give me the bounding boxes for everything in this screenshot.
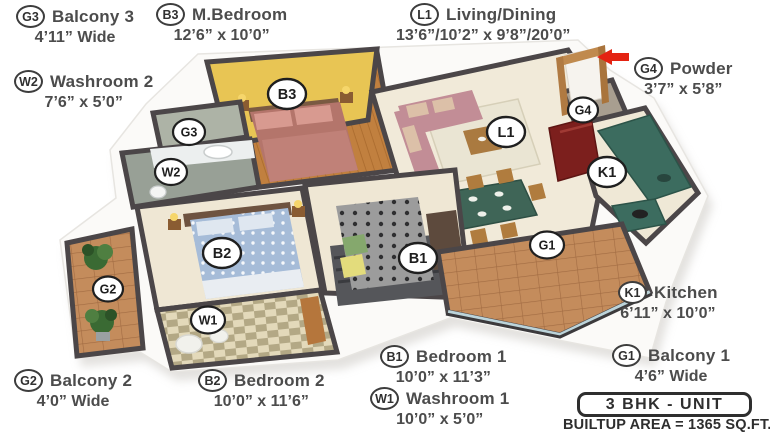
builtup-area-label: BUILTUP AREA = 1365 SQ.FT. [563, 417, 770, 433]
marker-b3: B3 [268, 79, 306, 109]
marker-b1: B1 [399, 243, 437, 273]
marker-w1: W1 [191, 307, 225, 334]
room-dims: 13’6”/10’2” x 9’8”/20’0” [396, 27, 570, 45]
svg-text:B2: B2 [213, 246, 232, 262]
lamp [170, 213, 178, 221]
unit-type-label: 3 BHK - UNIT [606, 396, 724, 414]
room-name: Kitchen [654, 283, 718, 303]
svg-text:G3: G3 [181, 126, 198, 140]
marker-k1: K1 [588, 157, 626, 187]
cooktop [632, 210, 648, 219]
room-code-badge: B1 [380, 345, 409, 368]
svg-text:B3: B3 [278, 87, 297, 103]
room-dims: 10’0” x 11’3” [380, 369, 507, 387]
room-code-badge: G3 [16, 5, 45, 28]
room-code-badge: G1 [612, 344, 641, 367]
room-code-badge: G4 [634, 57, 663, 80]
legend-washroom-1: W1 Washroom 1 10’0” x 5’0” [370, 387, 509, 429]
svg-text:G4: G4 [575, 104, 592, 118]
room-name: Washroom 1 [406, 389, 509, 409]
room-dims: 7’6” x 5’0” [14, 94, 153, 112]
lamp [342, 86, 350, 94]
svg-text:L1: L1 [498, 125, 515, 141]
marker-g2: G2 [93, 277, 123, 302]
room-name: Balcony 3 [52, 7, 134, 27]
room-dims: 6’11” x 10’0” [618, 305, 718, 323]
legend-bedroom-2: B2 Bedroom 2 10’0” x 11’6” [198, 369, 325, 411]
room-code-badge: W2 [14, 70, 43, 93]
legend-powder: G4 Powder 3’7” x 5’8” [634, 57, 733, 99]
marker-w2: W2 [155, 159, 187, 185]
svg-text:K1: K1 [598, 165, 617, 181]
svg-text:G1: G1 [539, 239, 556, 253]
marker-g4: G4 [568, 98, 598, 123]
room-name: Living/Dining [446, 5, 556, 25]
floorplan-page: B3 G3 W2 B2 G2 W1 [0, 0, 770, 434]
room-code-badge: B2 [198, 369, 227, 392]
legend-balcony-3: G3 Balcony 3 4’11” Wide [16, 5, 134, 47]
room-name: Washroom 2 [50, 72, 153, 92]
room-name: Balcony 2 [50, 371, 132, 391]
legend-washroom-2: W2 Washroom 2 7’6” x 5’0” [14, 70, 153, 112]
room-dims: 4’11” Wide [16, 29, 134, 47]
room-dims: 3’7” x 5’8” [634, 81, 733, 99]
room-name: Bedroom 1 [416, 347, 507, 367]
legend-master-bedroom: B3 M.Bedroom 12’6” x 10’0” [156, 3, 287, 45]
svg-text:G2: G2 [100, 283, 117, 297]
room-name: Bedroom 2 [234, 371, 325, 391]
dining-chair [500, 222, 518, 239]
room-code-badge: K1 [618, 281, 647, 304]
marker-b2: B2 [203, 238, 241, 268]
bathtub [204, 146, 232, 159]
room-dims: 4’6” Wide [612, 368, 730, 386]
toilet [150, 186, 166, 198]
room-code-badge: W1 [370, 387, 399, 410]
legend-balcony-2: G2 Balcony 2 4’0” Wide [14, 369, 132, 411]
svg-text:B1: B1 [409, 251, 428, 267]
room-name: Powder [670, 59, 733, 79]
marker-g3: G3 [173, 119, 205, 145]
room-name: Balcony 1 [648, 346, 730, 366]
room-dims: 10’0” x 5’0” [370, 411, 509, 429]
room-dims: 12’6” x 10’0” [156, 27, 287, 45]
tub [176, 335, 202, 353]
svg-text:W1: W1 [199, 314, 218, 328]
kitchen-sink [657, 174, 671, 182]
legend-bedroom-1: B1 Bedroom 1 10’0” x 11’3” [380, 345, 507, 387]
lamp [294, 200, 302, 208]
room-name: M.Bedroom [192, 5, 287, 25]
legend-living-dining: L1 Living/Dining 13’6”/10’2” x 9’8”/20’0… [396, 3, 570, 45]
room-code-badge: L1 [410, 3, 439, 26]
legend-balcony-1: G1 Balcony 1 4’6” Wide [612, 344, 730, 386]
svg-text:W2: W2 [162, 166, 181, 180]
unit-type-box: 3 BHK - UNIT [577, 392, 752, 417]
marker-l1: L1 [487, 117, 525, 147]
room-dims: 10’0” x 11’6” [198, 393, 325, 411]
room-code-badge: G2 [14, 369, 43, 392]
room-code-badge: B3 [156, 3, 185, 26]
room-dims: 4’0” Wide [14, 393, 132, 411]
marker-g1: G1 [530, 232, 564, 259]
legend-kitchen: K1 Kitchen 6’11” x 10’0” [618, 281, 718, 323]
